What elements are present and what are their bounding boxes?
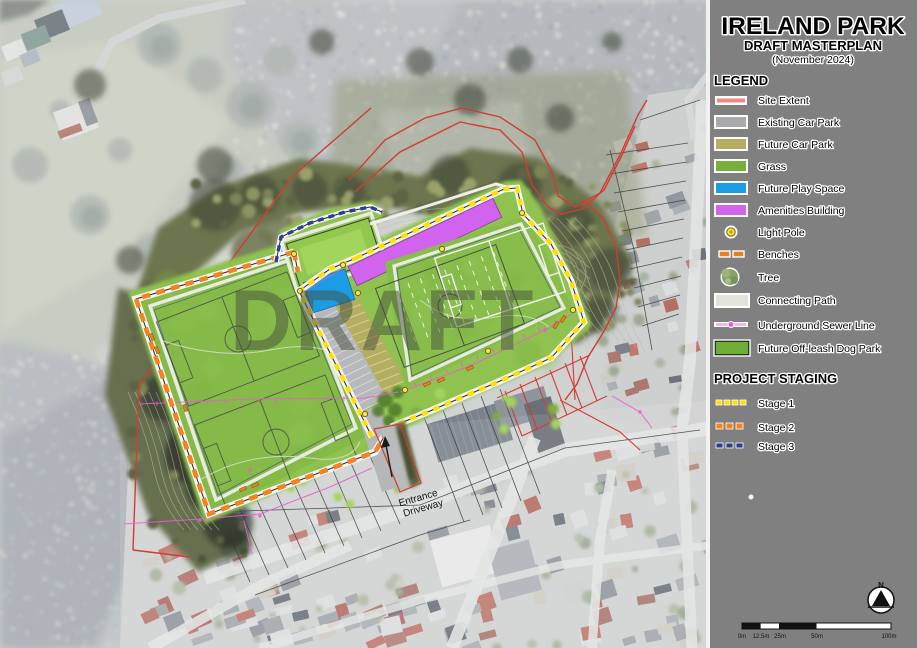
svg-text:Light Pole: Light Pole	[758, 227, 805, 239]
svg-text:100m: 100m	[881, 634, 896, 640]
svg-text:PROJECT STAGING: PROJECT STAGING	[714, 371, 837, 386]
svg-text:25m: 25m	[774, 634, 786, 640]
svg-text:Future Off-leash Dog Park: Future Off-leash Dog Park	[758, 343, 881, 355]
svg-text:50m: 50m	[811, 634, 823, 640]
svg-text:Connecting Path: Connecting Path	[758, 295, 836, 307]
svg-text:Amenities Building: Amenities Building	[758, 205, 845, 217]
svg-text:N: N	[878, 581, 884, 590]
svg-text:Stage 2: Stage 2	[758, 422, 794, 434]
svg-text:DRAFT MASTERPLAN: DRAFT MASTERPLAN	[744, 38, 882, 53]
svg-text:Benches: Benches	[758, 249, 799, 261]
svg-text:LEGEND: LEGEND	[714, 73, 768, 88]
svg-text:Stage 3: Stage 3	[758, 441, 794, 453]
svg-text:(November 2024): (November 2024)	[772, 54, 854, 66]
svg-text:Underground Sewer Line: Underground Sewer Line	[758, 320, 875, 332]
svg-text:IRELAND PARK: IRELAND PARK	[721, 13, 905, 40]
svg-text:Site Extent: Site Extent	[758, 95, 809, 107]
svg-text:Stage 1: Stage 1	[758, 398, 794, 410]
svg-text:DRAFT: DRAFT	[230, 273, 536, 369]
svg-text:Future Play Space: Future Play Space	[758, 183, 845, 195]
svg-text:Existing Car Park: Existing Car Park	[758, 117, 840, 129]
svg-text:Tree: Tree	[758, 272, 779, 284]
svg-text:0m: 0m	[738, 634, 746, 640]
svg-text:12.5m: 12.5m	[753, 634, 770, 640]
svg-text:Grass: Grass	[758, 161, 786, 173]
svg-text:Future Car Park: Future Car Park	[758, 139, 833, 151]
